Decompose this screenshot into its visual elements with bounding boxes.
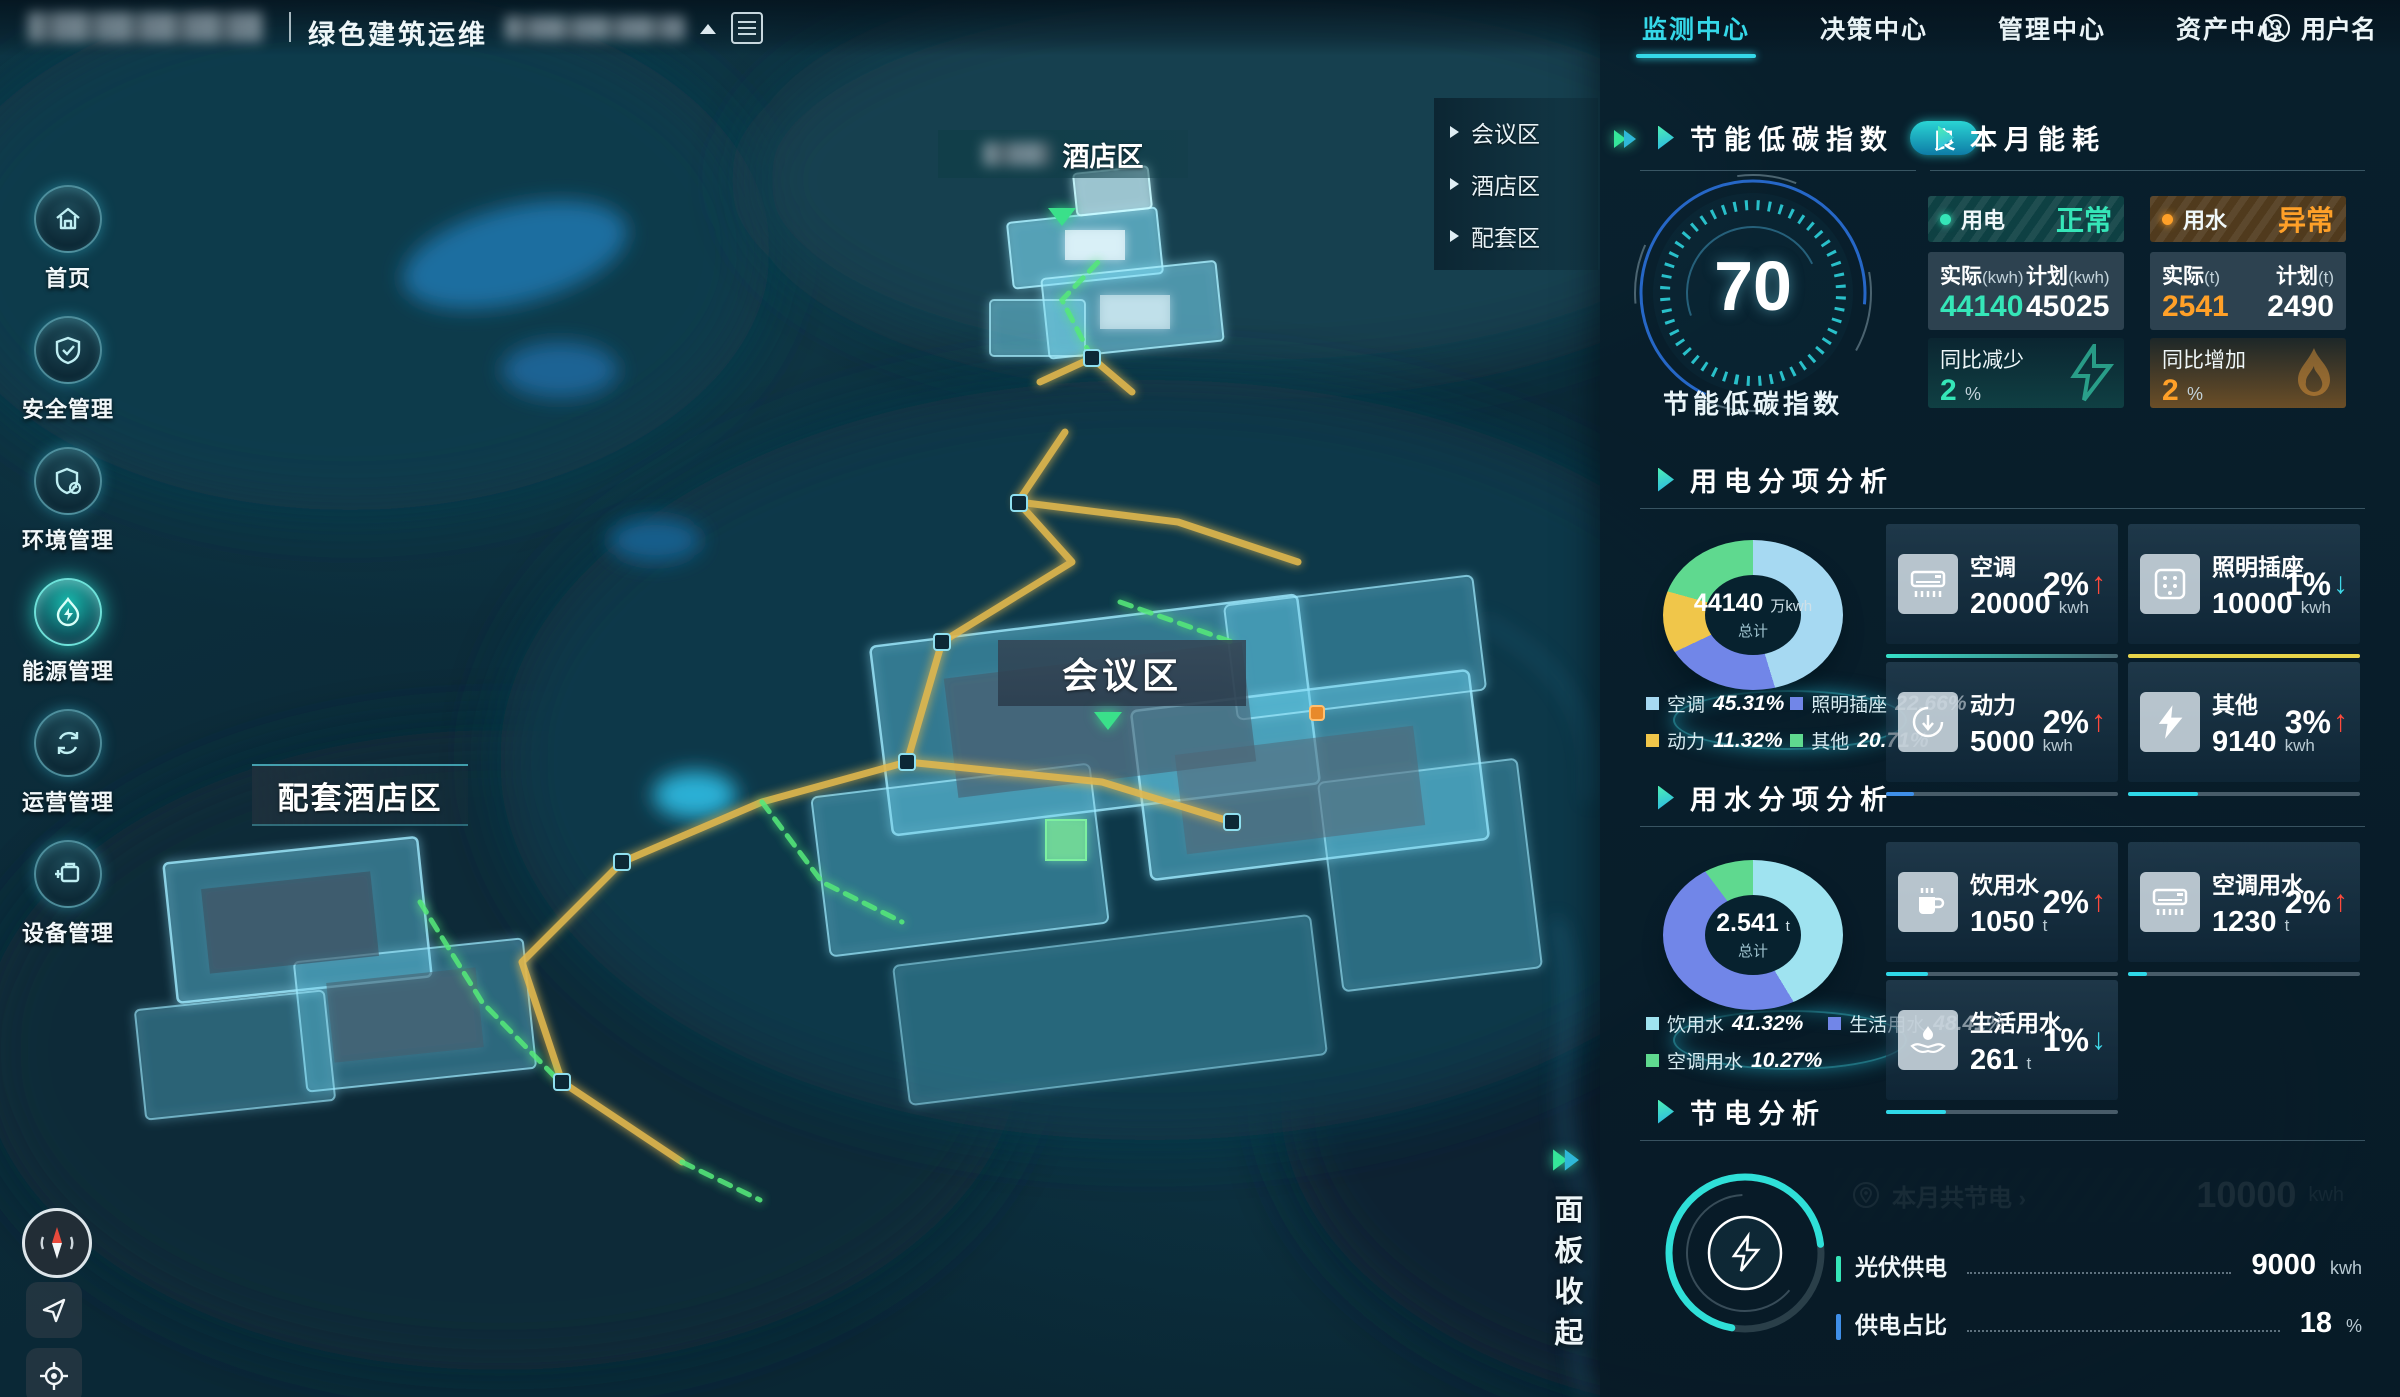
water-card-drinking: 饮用水 1050 t 2%↑	[1886, 842, 2118, 976]
crosshair-icon	[37, 1359, 71, 1393]
equipment-icon	[52, 858, 84, 890]
trend-up-arrow-icon: ↑	[2091, 885, 2106, 919]
nav-tab-management[interactable]: 管理中心	[1996, 0, 2108, 56]
topbar-divider	[289, 12, 291, 42]
list-button[interactable]	[731, 12, 763, 44]
lightning-bolt-icon	[2140, 692, 2200, 752]
double-chevron-right-icon	[1546, 1140, 1586, 1180]
triangle-bullet-icon	[1450, 126, 1459, 138]
flame-watermark-icon	[2288, 344, 2340, 402]
shield-leaf-icon	[52, 465, 84, 497]
water-status-banner: 用水 异常	[2150, 196, 2346, 242]
dotted-leader	[1967, 1330, 2280, 1332]
region-menu: 会议区 酒店区 配套区	[1434, 98, 1598, 270]
electric-consumption-card: 用电 正常 实际(kwh) 计划(kwh) 44140 45025 同比减少 2…	[1928, 196, 2124, 408]
region-menu-item-annex[interactable]: 配套区	[1434, 210, 1598, 262]
dotted-leader	[1967, 1272, 2231, 1274]
power-card-ac: 空调 20000 kwh 2%↑	[1886, 524, 2118, 658]
hotel-label-text: 酒店区	[1063, 135, 1144, 174]
sidebar-item-equipment[interactable]: 设备管理	[22, 840, 114, 948]
product-title: 绿色建筑运维	[308, 13, 488, 52]
electric-actual-value: 44140	[1940, 290, 2026, 324]
saving-row-ratio: 供电占比 18 %	[1836, 1306, 2362, 1340]
sidebar-item-energy[interactable]: 能源管理	[22, 578, 114, 686]
power-analysis-header: 用电分项分析	[1658, 460, 1894, 499]
water-plan-value: 2490	[2248, 290, 2334, 324]
hotel-area-label[interactable]: 酒店区	[938, 130, 1188, 178]
energy-section-header: 本月能耗	[1938, 118, 2106, 157]
smart-building-dashboard: 酒店区 会议区 配套酒店区 会议区 酒店区 配套区	[0, 0, 2400, 1397]
hotel-label-blurred-prefix	[983, 142, 1051, 166]
electric-stats: 实际(kwh) 计划(kwh) 44140 45025	[1928, 252, 2124, 330]
status-dot-icon	[2162, 214, 2173, 225]
water-card-domestic: 生活用水 261 t 1%↓	[1886, 980, 2118, 1114]
energy-drop-icon	[52, 596, 84, 628]
section-marker-icon	[1938, 126, 1954, 150]
compass-widget[interactable]	[22, 1208, 92, 1278]
navigation-arrow-icon	[38, 1294, 70, 1326]
status-dot-icon	[1940, 214, 1951, 225]
water-actual-value: 2541	[2162, 290, 2248, 324]
trend-up-arrow-icon: ↑	[2091, 705, 2106, 739]
panel-collapse-button[interactable]: 面板收起	[1536, 1140, 1596, 1358]
mug-icon	[1898, 872, 1958, 932]
water-donut-legend: 饮用水41.32% 生活用水48.41% 空调用水10.27%	[1646, 1010, 1916, 1074]
water-analysis-header: 用水分项分析	[1658, 778, 1894, 817]
saving-analysis-header: 节电分析	[1658, 1092, 1826, 1131]
panel-collapse-arrow-top[interactable]	[1608, 122, 1642, 161]
electric-status: 正常	[2056, 199, 2112, 239]
trend-up-arrow-icon: ↑	[2333, 885, 2348, 919]
section-marker-icon	[1658, 126, 1674, 150]
row-tick-icon	[1836, 1314, 1841, 1340]
power-donut-legend: 空调45.31% 照明插座22.66% 动力11.32% 其他20.71%	[1646, 690, 1896, 754]
primary-nav: 监测中心 决策中心 管理中心 资产中心	[1640, 0, 2286, 56]
conference-marker-icon	[1094, 712, 1122, 730]
user-menu[interactable]: 用户名	[2261, 0, 2376, 56]
nav-tab-monitoring[interactable]: 监测中心	[1640, 0, 1752, 56]
top-bar: 绿色建筑运维 监测中心 决策中心 管理中心 资产中心 用户名	[0, 0, 2400, 56]
trend-up-arrow-icon: ↑	[2091, 567, 2106, 601]
saving-row-pv: 光伏供电 9000 kwh	[1836, 1248, 2362, 1282]
hands-water-icon	[1898, 1010, 1958, 1070]
section-marker-icon	[1658, 468, 1674, 492]
electric-trend: 同比减少 2 %	[1928, 338, 2124, 408]
index-section-header: 节能低碳指数 良	[1658, 118, 1978, 157]
home-icon	[52, 203, 84, 235]
water-status: 异常	[2278, 199, 2334, 239]
water-card-ac: 空调用水 1230 t 2%↑	[2128, 842, 2360, 976]
power-card-other: 其他 9140 kwh 3%↑	[2128, 662, 2360, 796]
trend-down-arrow-icon: ↓	[2091, 1023, 2106, 1057]
air-conditioner-icon	[1898, 554, 1958, 614]
saving-ring-gauge	[1660, 1168, 1830, 1338]
energy-index-score: 70	[1628, 246, 1878, 326]
hotel-marker-icon	[1048, 208, 1076, 226]
water-stats: 实际(t) 计划(t) 2541 2490	[2150, 252, 2346, 330]
triangle-bullet-icon	[1450, 230, 1459, 242]
region-menu-item-conference[interactable]: 会议区	[1434, 106, 1598, 158]
sidebar-item-environment[interactable]: 环境管理	[22, 447, 114, 555]
row-tick-icon	[1836, 1256, 1841, 1282]
power-socket-icon	[2140, 554, 2200, 614]
locate-button[interactable]	[26, 1348, 82, 1397]
power-card-dynamic: 动力 5000 kwh 2%↑	[1886, 662, 2118, 796]
project-selector-blurred[interactable]	[505, 16, 685, 40]
water-consumption-card: 用水 异常 实际(t) 计划(t) 2541 2490 同比增加 2 %	[2150, 196, 2346, 408]
user-avatar-icon	[2261, 13, 2291, 43]
sidebar-item-home[interactable]: 首页	[22, 185, 114, 293]
trend-up-arrow-icon: ↑	[2333, 705, 2348, 739]
nav-tab-decision[interactable]: 决策中心	[1818, 0, 1930, 56]
energy-index-gauge: 70 节能低碳指数	[1628, 168, 1878, 418]
electric-status-banner: 用电 正常	[1928, 196, 2124, 242]
sidebar-item-operations[interactable]: 运营管理	[22, 709, 114, 817]
dropdown-caret-icon[interactable]	[700, 24, 716, 34]
energy-index-caption: 节能低碳指数	[1628, 384, 1878, 421]
conference-area-label[interactable]: 会议区	[998, 640, 1246, 706]
shield-check-icon	[52, 334, 84, 366]
region-menu-item-hotel[interactable]: 酒店区	[1434, 158, 1598, 210]
section-marker-icon	[1658, 1100, 1674, 1124]
company-logo-blurred	[28, 12, 263, 42]
annex-area-label[interactable]: 配套酒店区	[252, 764, 468, 826]
reset-bearing-button[interactable]	[26, 1282, 82, 1338]
electric-plan-value: 45025	[2026, 290, 2112, 324]
water-trend: 同比增加 2 %	[2150, 338, 2346, 408]
power-card-lighting: 照明插座 10000 kwh 1%↓	[2128, 524, 2360, 658]
power-cycle-icon	[1898, 692, 1958, 752]
sidebar-item-security[interactable]: 安全管理	[22, 316, 114, 424]
air-conditioner-icon	[2140, 872, 2200, 932]
cycle-arrows-icon	[52, 727, 84, 759]
section-marker-icon	[1658, 786, 1674, 810]
triangle-bullet-icon	[1450, 178, 1459, 190]
trend-down-arrow-icon: ↓	[2333, 567, 2348, 601]
compass-needle-icon	[35, 1221, 79, 1265]
lightning-watermark-icon	[2066, 344, 2118, 402]
